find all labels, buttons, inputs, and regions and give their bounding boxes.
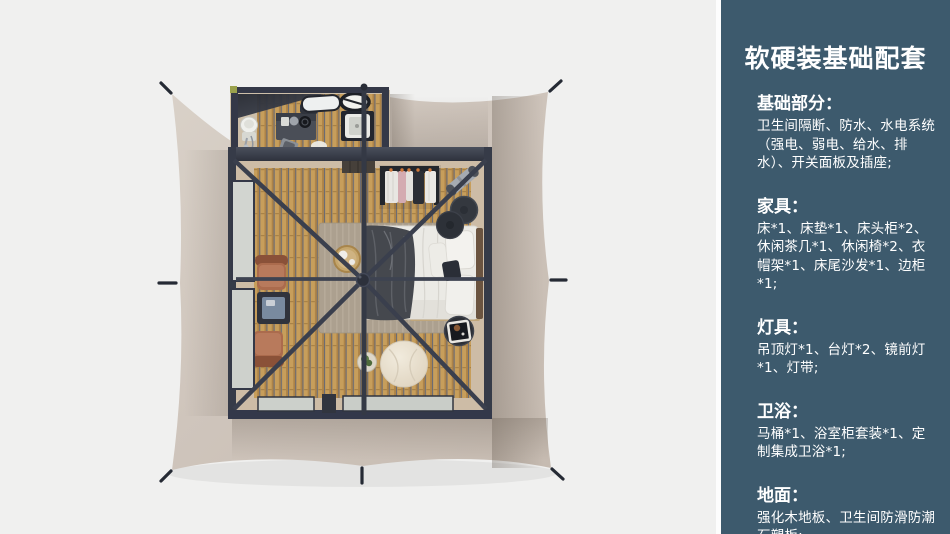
plant-table: [358, 353, 377, 372]
section-heading: 家具：: [757, 197, 938, 217]
section-lighting: 灯具： 吊顶灯*1、台灯*2、镜前灯*1、灯带;: [757, 318, 938, 378]
spec-panel: 软硬装基础配套 基础部分： 卫生间隔断、防水、水电系统（强电、弱电、给水、排水）…: [721, 0, 950, 534]
section-bathroom: 卫浴： 马桶*1、浴室柜套装*1、定制集成卫浴*1;: [757, 402, 938, 462]
section-heading: 地面：: [757, 486, 938, 506]
section-body: 卫生间隔断、防水、水电系统（强电、弱电、给水、排水）、开关面板及插座;: [757, 117, 938, 173]
section-flooring: 地面： 强化木地板、卫生间防滑防潮石塑板;: [757, 486, 938, 534]
section-heading: 卫浴：: [757, 402, 938, 422]
section-body: 马桶*1、浴室柜套装*1、定制集成卫浴*1;: [757, 425, 938, 462]
beam-hub: [357, 274, 370, 287]
section-furniture: 家具： 床*1、床垫*1、床头柜*2、休闲茶几*1、休闲椅*2、衣帽架*1、床尾…: [757, 197, 938, 294]
bathroom-mirror: [301, 95, 340, 113]
bean-bag: [381, 341, 428, 387]
shower-tray: [341, 111, 374, 141]
section-body: 吊顶灯*1、台灯*2、镜前灯*1、灯带;: [757, 341, 938, 378]
panel-title: 软硬装基础配套: [727, 44, 944, 74]
headboard: [476, 228, 483, 319]
wardrobe-rack: [379, 165, 441, 209]
section-body: 强化木地板、卫生间防滑防潮石塑板;: [757, 509, 938, 534]
lounge-chair-1: [255, 255, 288, 290]
magazine-table: [257, 292, 290, 324]
slide: 软硬装基础配套 基础部分： 卫生间隔断、防水、水电系统（强电、弱电、给水、排水）…: [0, 0, 950, 534]
tent-top-view-rendering: [0, 0, 716, 534]
section-body: 床*1、床垫*1、床头柜*2、休闲茶几*1、休闲椅*2、衣帽架*1、床尾沙发*1…: [757, 220, 938, 294]
round-side-table: [445, 317, 474, 346]
section-basics: 基础部分： 卫生间隔断、防水、水电系统（强电、弱电、给水、排水）、开关面板及插座…: [757, 94, 938, 173]
section-heading: 基础部分：: [757, 94, 938, 114]
corner-connector: [230, 86, 237, 93]
tent-rendering-stage: [0, 0, 716, 534]
section-heading: 灯具：: [757, 318, 938, 338]
door-mats: [258, 394, 453, 413]
bed: [362, 225, 483, 321]
